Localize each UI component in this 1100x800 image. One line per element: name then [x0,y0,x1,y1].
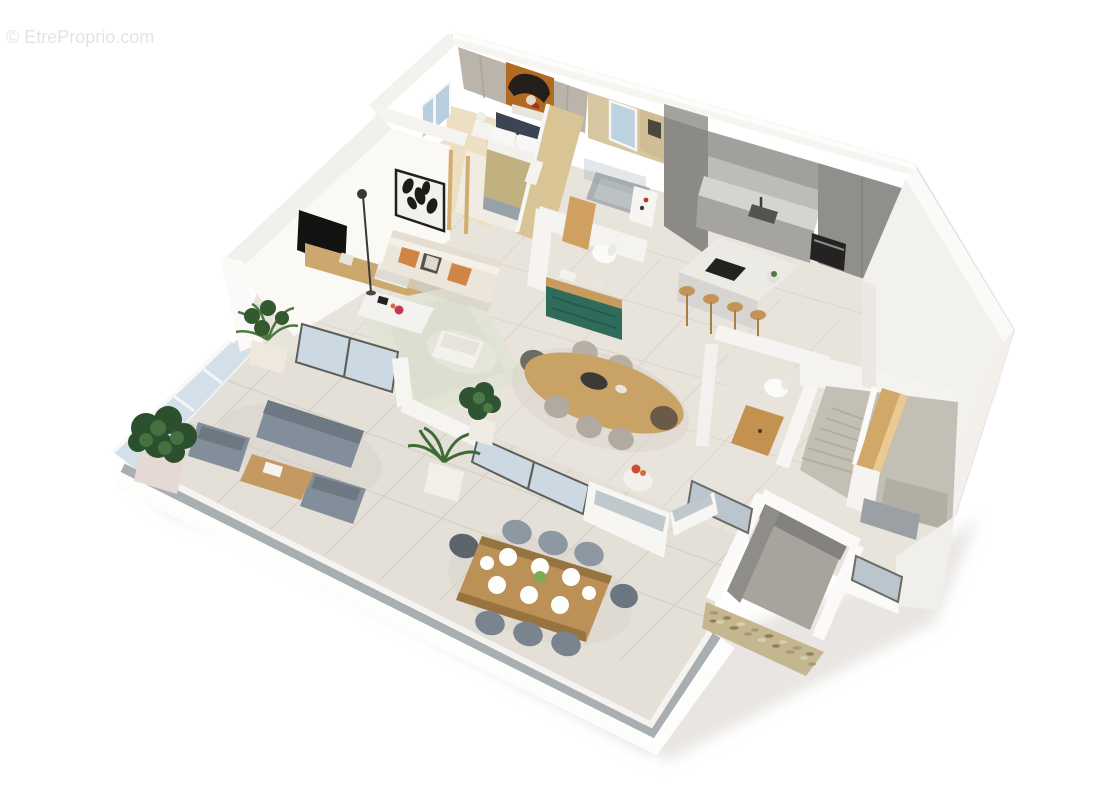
svg-text:© EtreProprio.com: © EtreProprio.com [6,27,154,47]
